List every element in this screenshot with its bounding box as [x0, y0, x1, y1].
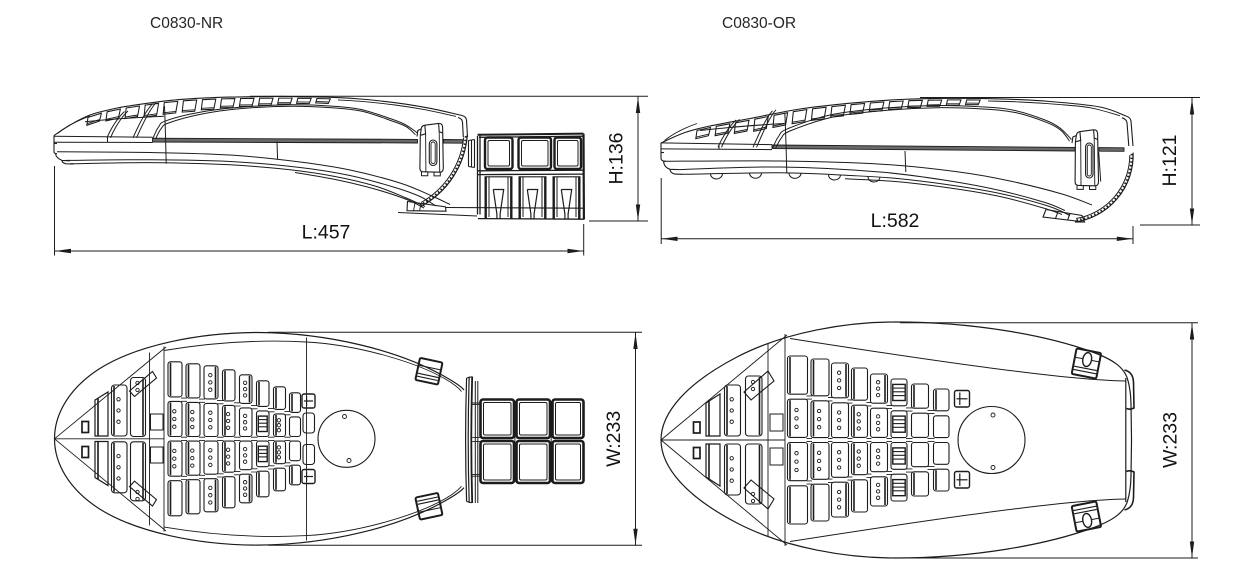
svg-text:H:136: H:136 — [606, 132, 628, 184]
svg-text:C0830-NR: C0830-NR — [150, 15, 223, 32]
svg-text:H:121: H:121 — [1159, 134, 1181, 186]
svg-text:L:457: L:457 — [302, 222, 351, 244]
svg-text:L:582: L:582 — [871, 210, 920, 232]
svg-text:C0830-OR: C0830-OR — [722, 15, 796, 32]
svg-text:W:233: W:233 — [1160, 412, 1182, 468]
svg-text:W:233: W:233 — [603, 411, 625, 467]
